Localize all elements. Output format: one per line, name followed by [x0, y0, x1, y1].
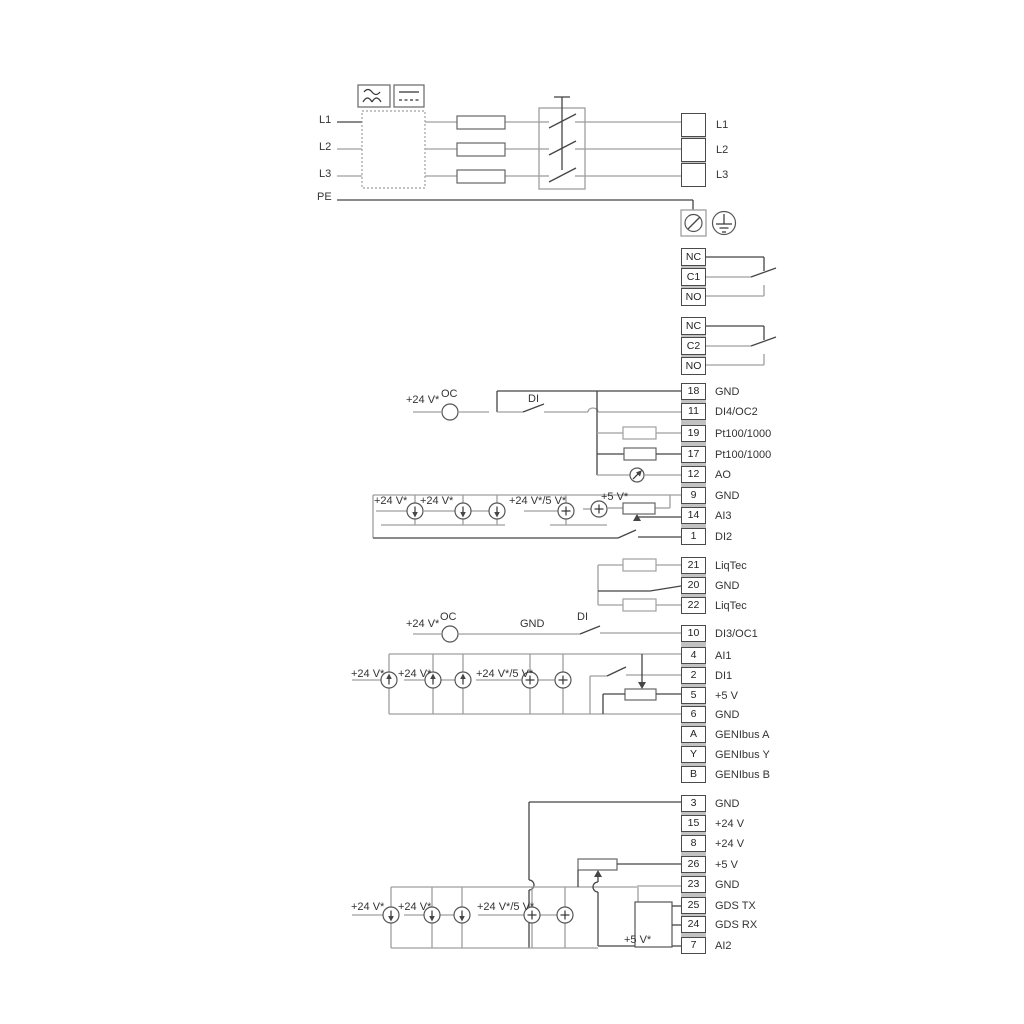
terminal-label-L3: L3 — [716, 169, 728, 181]
terminal-label-6: GND — [715, 709, 739, 721]
terminal-label-18: GND — [715, 386, 739, 398]
terminal-label-23: GND — [715, 879, 739, 891]
annotation-l1: L1 — [319, 115, 331, 126]
annotation-24v: +24 V* — [398, 669, 431, 680]
liqtec-resistor-22 — [598, 599, 681, 611]
relay1-contact — [706, 257, 776, 296]
annotation-24v5v: +24 V*/5 V* — [476, 669, 533, 680]
annotation-24v: +24 V* — [398, 902, 431, 913]
terminal-liqtec-21: 21 — [681, 557, 706, 574]
terminal-label-5: +5 V — [715, 690, 738, 702]
annotation-24v: +24 V* — [351, 902, 384, 913]
wiring-diagram: L1L2L3NCC1NONCC2NO18GND11DI4/OC219Pt100/… — [0, 0, 1024, 1024]
terminal-io3-15: 15 — [681, 815, 706, 832]
terminal-io3-8: 8 — [681, 835, 706, 852]
terminal-liqtec-20: 20 — [681, 577, 706, 594]
annotation-24v5v: +24 V*/5 V* — [509, 496, 566, 507]
terminal-io1-11: 11 — [681, 403, 706, 420]
terminal-label-B: GENIbus B — [715, 769, 770, 781]
terminal-label-7: AI2 — [715, 940, 732, 952]
terminal-mains-L2 — [681, 138, 706, 162]
voltage-source-icon — [557, 907, 573, 923]
current-source-icon — [455, 503, 471, 519]
resistor-pt100-19 — [597, 427, 681, 439]
liqtec-gnd-line — [598, 586, 681, 591]
terminal-screw-icon — [681, 210, 706, 236]
terminal-label-24: GDS RX — [715, 919, 757, 931]
terminal-label-25: GDS TX — [715, 900, 756, 912]
terminal-io3-3: 3 — [681, 795, 706, 812]
emc-filter-box — [362, 111, 425, 188]
terminal-relay2-NC: NC — [681, 317, 706, 335]
terminal-io2-10: 10 — [681, 625, 706, 642]
terminal-io2-6: 6 — [681, 706, 706, 723]
wiring-svg — [0, 0, 1024, 1024]
terminal-liqtec-22: 22 — [681, 597, 706, 614]
liqtec-resistor-21 — [598, 559, 681, 605]
terminal-relay1-NO: NO — [681, 288, 706, 306]
ac-symbol-box — [358, 85, 390, 107]
mains-input-lines — [337, 122, 681, 176]
terminal-label-1: DI2 — [715, 531, 732, 543]
di3-switch — [482, 626, 681, 634]
annotation-5v: +5 V* — [624, 935, 651, 946]
annotation-l2: L2 — [319, 142, 331, 153]
terminal-io1-18: 18 — [681, 383, 706, 400]
pe-line — [337, 200, 693, 210]
terminal-label-26: +5 V — [715, 859, 738, 871]
annotation-oc: OC — [441, 389, 458, 400]
annotation-pe: PE — [317, 192, 332, 203]
earth-ground-icon — [713, 212, 736, 235]
terminal-io2-B: B — [681, 766, 706, 783]
terminal-mains-L3 — [681, 163, 706, 187]
fuse-l3 — [457, 170, 505, 183]
terminal-io1-1: 1 — [681, 528, 706, 545]
terminal-label-9: GND — [715, 490, 739, 502]
ao-meter-icon — [597, 468, 681, 482]
annotation-oc: OC — [440, 612, 457, 623]
terminal-label-12: AO — [715, 469, 731, 481]
current-source-icon — [489, 503, 505, 519]
terminal-label-11: DI4/OC2 — [715, 406, 758, 418]
annotation-5v: +5 V* — [601, 492, 628, 503]
fuse-l2 — [457, 143, 505, 156]
terminal-label-15: +24 V — [715, 818, 744, 830]
annotation-24v: +24 V* — [420, 496, 453, 507]
annotation-24v: +24 V* — [351, 669, 384, 680]
dc-symbol-box — [394, 85, 424, 107]
terminal-io1-19: 19 — [681, 425, 706, 442]
terminal-io1-17: 17 — [681, 446, 706, 463]
terminal-label-10: DI3/OC1 — [715, 628, 758, 640]
annotation-24v5v: +24 V*/5 V* — [477, 902, 534, 913]
di4-switch — [497, 404, 681, 412]
voltage-source-icon — [555, 672, 571, 688]
terminal-io1-14: 14 — [681, 507, 706, 524]
terminal-io1-9: 9 — [681, 487, 706, 504]
annotation-24v: +24 V* — [406, 619, 439, 630]
annotation-gnd: GND — [520, 619, 544, 630]
terminal-label-A: GENIbus A — [715, 729, 769, 741]
terminal-label-Y: GENIbus Y — [715, 749, 770, 761]
terminal-io2-4: 4 — [681, 647, 706, 664]
current-source-icon — [383, 907, 399, 923]
terminal-relay2-NO: NO — [681, 357, 706, 375]
terminal-io2-Y: Y — [681, 746, 706, 763]
terminal-label-19: Pt100/1000 — [715, 428, 771, 440]
current-source-icon — [455, 672, 471, 688]
terminal-io3-23: 23 — [681, 876, 706, 893]
terminal-label-3: GND — [715, 798, 739, 810]
terminal-label-22: LiqTec — [715, 600, 747, 612]
terminal-io3-7: 7 — [681, 937, 706, 954]
terminal-label-14: AI3 — [715, 510, 732, 522]
fuse-l1 — [457, 116, 505, 129]
terminal-relay2-C2: C2 — [681, 337, 706, 355]
terminal-label-21: LiqTec — [715, 560, 747, 572]
di2-switch — [373, 530, 681, 538]
annotation-di: DI — [577, 612, 588, 623]
terminal-label-20: GND — [715, 580, 739, 592]
terminal-mains-L1 — [681, 113, 706, 137]
terminal-io3-25: 25 — [681, 897, 706, 914]
terminal-io2-A: A — [681, 726, 706, 743]
ai1-source-chain — [352, 654, 681, 714]
terminal-label-17: Pt100/1000 — [715, 449, 771, 461]
oc-circle-icon — [413, 404, 489, 420]
potentiometer-ai1 — [603, 654, 681, 714]
terminal-label-L1: L1 — [716, 119, 728, 131]
annotation-24v: +24 V* — [406, 395, 439, 406]
terminal-label-2: DI1 — [715, 670, 732, 682]
current-source-icon — [454, 907, 470, 923]
terminal-io1-12: 12 — [681, 466, 706, 483]
terminal-label-8: +24 V — [715, 838, 744, 850]
terminal-relay1-C1: C1 — [681, 268, 706, 286]
terminal-io2-2: 2 — [681, 667, 706, 684]
relay2-contact — [706, 326, 776, 365]
terminal-io3-24: 24 — [681, 916, 706, 933]
annotation-di: DI — [528, 394, 539, 405]
voltage-source-icon — [591, 501, 607, 517]
mains-contactor — [539, 97, 585, 189]
terminal-io2-5: 5 — [681, 687, 706, 704]
annotation-l3: L3 — [319, 169, 331, 180]
terminal-label-4: AI1 — [715, 650, 732, 662]
terminal-label-L2: L2 — [716, 144, 728, 156]
terminal-relay1-NC: NC — [681, 248, 706, 266]
terminal-io3-26: 26 — [681, 856, 706, 873]
annotation-24v: +24 V* — [374, 496, 407, 507]
resistor-pt100-17 — [597, 448, 681, 460]
